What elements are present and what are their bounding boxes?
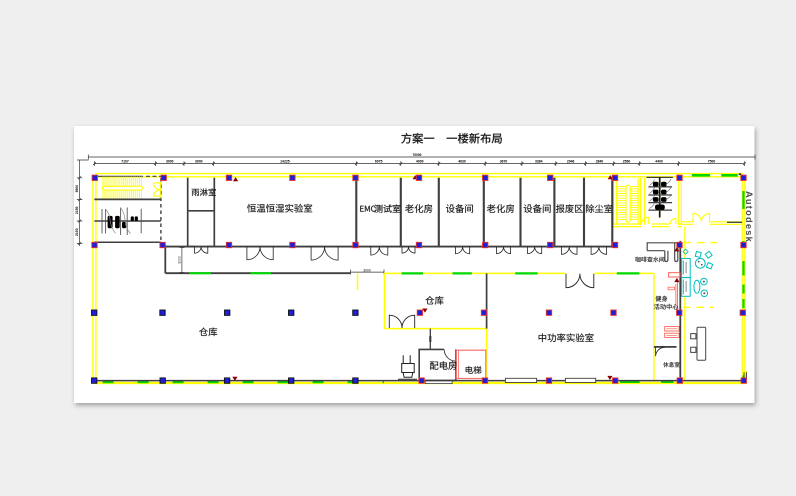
svg-text:2946: 2946	[567, 160, 575, 164]
svg-text:3000: 3000	[363, 268, 371, 272]
svg-text:7107: 7107	[121, 160, 129, 164]
svg-text:3000: 3000	[178, 256, 182, 264]
svg-text:4000: 4000	[416, 160, 424, 164]
svg-text:Autodesk: Autodesk	[744, 191, 754, 243]
svg-text:3670: 3670	[500, 160, 508, 164]
svg-text:6075: 6075	[375, 160, 383, 164]
svg-text:2150: 2150	[75, 206, 79, 214]
svg-text:4400: 4400	[655, 160, 663, 164]
svg-text:14225: 14225	[280, 160, 290, 164]
svg-text:3600: 3600	[75, 185, 79, 193]
svg-text:70000: 70000	[413, 153, 422, 157]
svg-text:2840: 2840	[596, 160, 604, 164]
svg-text:3384: 3384	[535, 160, 543, 164]
svg-text:2150: 2150	[75, 228, 79, 236]
svg-text:2560: 2560	[623, 160, 631, 164]
svg-text:3000: 3000	[195, 160, 203, 164]
svg-text:3000: 3000	[166, 160, 174, 164]
svg-text:4630: 4630	[458, 160, 466, 164]
svg-text:7500: 7500	[708, 160, 716, 164]
